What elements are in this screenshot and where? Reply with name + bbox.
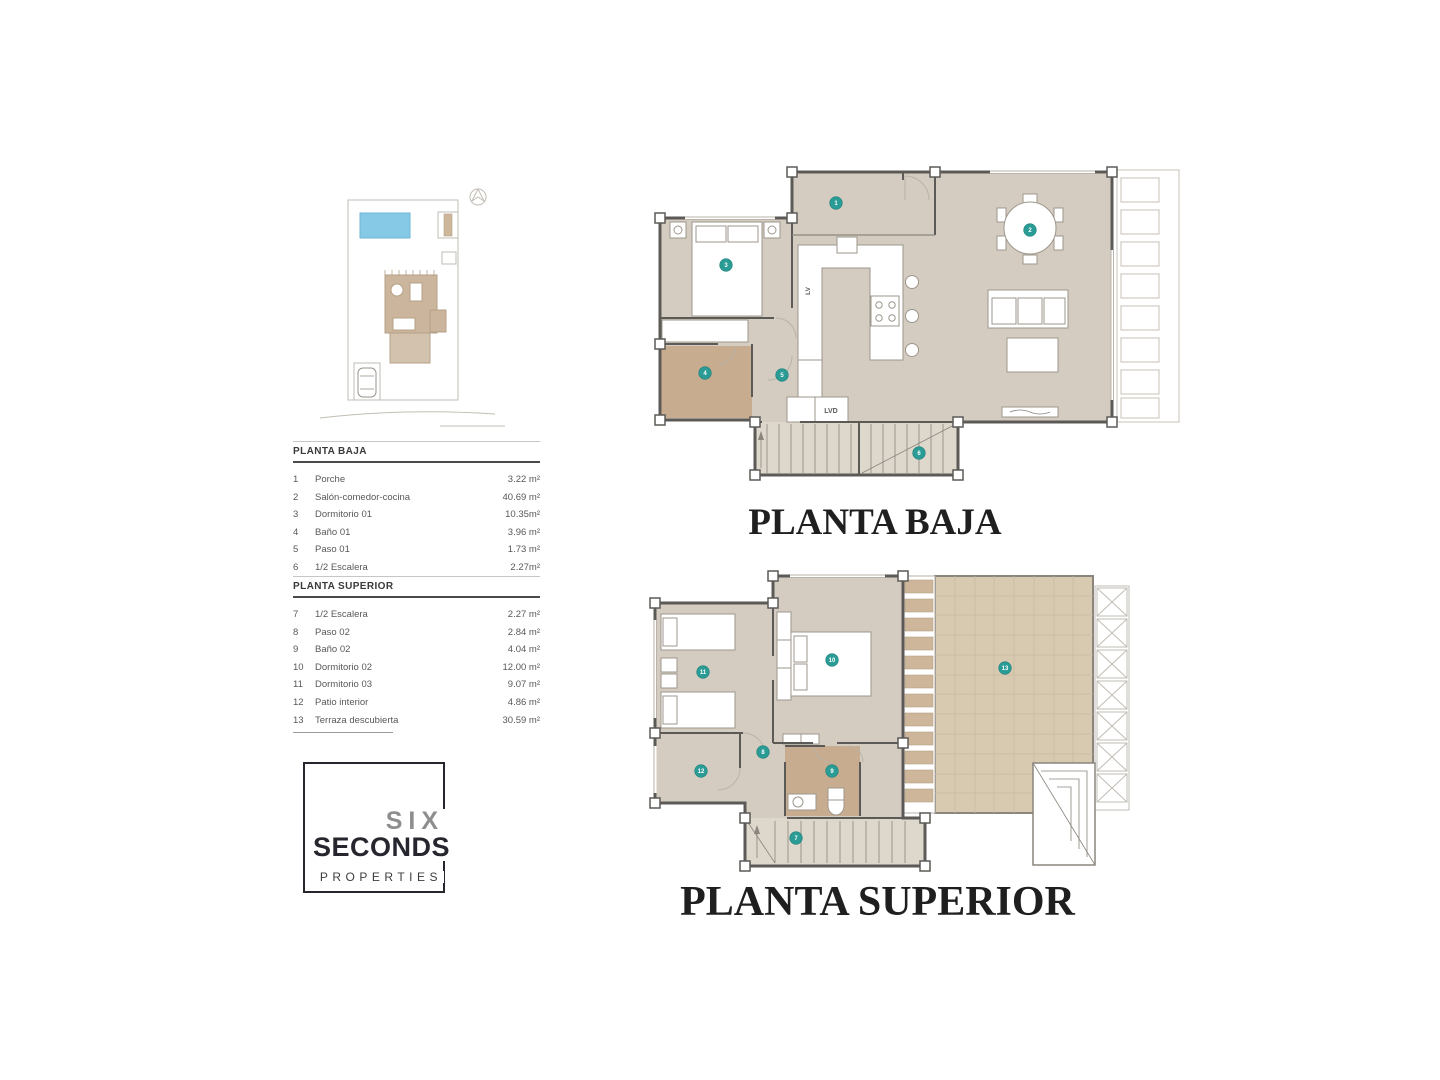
room-marker-number: 13 [1002,666,1009,672]
row-number: 12 [293,694,315,712]
logo-six: SIX [384,809,446,834]
table-row: 12Patio interior4.86 m² [293,694,540,712]
room-table-planta-superior: PLANTA SUPERIOR 71/2 Escalera2.27 m²8Pas… [293,576,540,733]
floor-plan-sheet: PLANTA BAJA 1Porche3.22 m²2Salón-comedor… [0,0,1440,1080]
road-line [320,412,495,418]
table-row: 5Paso 011.73 m² [293,541,540,559]
table-title: PLANTA SUPERIOR [293,577,540,596]
divider [293,732,393,733]
table-rows: 71/2 Escalera2.27 m²8Paso 022.84 m²9Baño… [293,606,540,729]
upper-floor-plan: 78910111213 [625,568,1190,878]
table-row: 2Salón-comedor-cocina40.69 m² [293,489,540,507]
divider [293,596,540,598]
row-number: 5 [293,541,315,559]
room-area: 2.84 m² [508,624,540,642]
room-name: Dormitorio 03 [315,676,508,694]
table-row: 13Terraza descubierta30.59 m² [293,712,540,730]
room-name: Baño 02 [315,641,508,659]
row-number: 10 [293,659,315,677]
room-name: Terraza descubierta [315,712,503,730]
patio-louvers [903,576,935,813]
room-name: 1/2 Escalera [315,606,508,624]
ground-floor-plan: LV LV [640,160,1200,500]
table-row: 8Paso 022.84 m² [293,624,540,642]
parking-car [354,363,380,400]
room-name: Porche [315,471,508,489]
six-seconds-logo: SIX SECONDS PROPERTIES [303,762,445,893]
pergola-slats [1117,170,1179,422]
room-area: 2.27 m² [508,606,540,624]
row-number: 6 [293,559,315,577]
upper-floor-title: PLANTA SUPERIOR [640,878,1115,926]
table-row: 10Dormitorio 0212.00 m² [293,659,540,677]
cooktop [871,296,899,326]
room-name: Dormitorio 01 [315,506,505,524]
room-area: 3.22 m² [508,471,540,489]
tv-cabinet [1002,407,1058,417]
sofa [988,290,1068,328]
logo-seconds: SECONDS [311,834,452,861]
ground-floor-title: PLANTA BAJA [640,501,1110,544]
room-name: Paso 01 [315,541,508,559]
row-number: 11 [293,676,315,694]
room-marker-number: 11 [700,670,707,676]
stool [906,344,919,357]
room-area: 12.00 m² [503,659,541,677]
row-number: 13 [293,712,315,730]
table-row: 11Dormitorio 039.07 m² [293,676,540,694]
laundry-closet: LVD [787,397,848,422]
room-area: 3.96 m² [508,524,540,542]
row-number: 9 [293,641,315,659]
room-area: 30.59 m² [503,712,541,730]
room-area: 2.27m² [510,559,540,577]
table-row: 1Porche3.22 m² [293,471,540,489]
bathroom-floor [660,346,752,418]
table-title: PLANTA BAJA [293,442,540,461]
room-table-planta-baja: PLANTA BAJA 1Porche3.22 m²2Salón-comedor… [293,441,540,577]
compass-icon [470,189,486,205]
room-name: Baño 01 [315,524,508,542]
table-row: 3Dormitorio 0110.35m² [293,506,540,524]
table-row: 71/2 Escalera2.27 m² [293,606,540,624]
stool [906,310,919,323]
row-number: 3 [293,506,315,524]
room-marker-number: 10 [829,658,836,664]
row-number: 7 [293,606,315,624]
coffee-table [1007,338,1058,372]
row-number: 2 [293,489,315,507]
divider [293,461,540,463]
site-plan [290,170,520,430]
room-area: 40.69 m² [503,489,541,507]
room-marker-number: 12 [698,769,705,775]
row-number: 4 [293,524,315,542]
exterior-stair [1033,763,1095,865]
room-area: 10.35m² [505,506,540,524]
room-area: 4.86 m² [508,694,540,712]
table-row: 61/2 Escalera2.27m² [293,559,540,577]
dishwasher-label: LV [805,286,812,294]
room-name: Patio interior [315,694,508,712]
room-name: Dormitorio 02 [315,659,503,677]
logo-properties: PROPERTIES [318,871,444,883]
table-row: 4Baño 013.96 m² [293,524,540,542]
room-area: 9.07 m² [508,676,540,694]
room-name: Paso 02 [315,624,508,642]
pergola-cross-bracing [1095,586,1129,810]
laundry-label: LVD [824,408,837,415]
table-rows: 1Porche3.22 m²2Salón-comedor-cocina40.69… [293,471,540,577]
room-area: 4.04 m² [508,641,540,659]
stairs-floor [755,422,958,475]
stool [906,276,919,289]
row-number: 1 [293,471,315,489]
table-row: 9Baño 024.04 m² [293,641,540,659]
room-name: Salón-comedor-cocina [315,489,503,507]
room-area: 1.73 m² [508,541,540,559]
pool [360,213,410,238]
row-number: 8 [293,624,315,642]
room-name: 1/2 Escalera [315,559,510,577]
closet [662,320,748,342]
